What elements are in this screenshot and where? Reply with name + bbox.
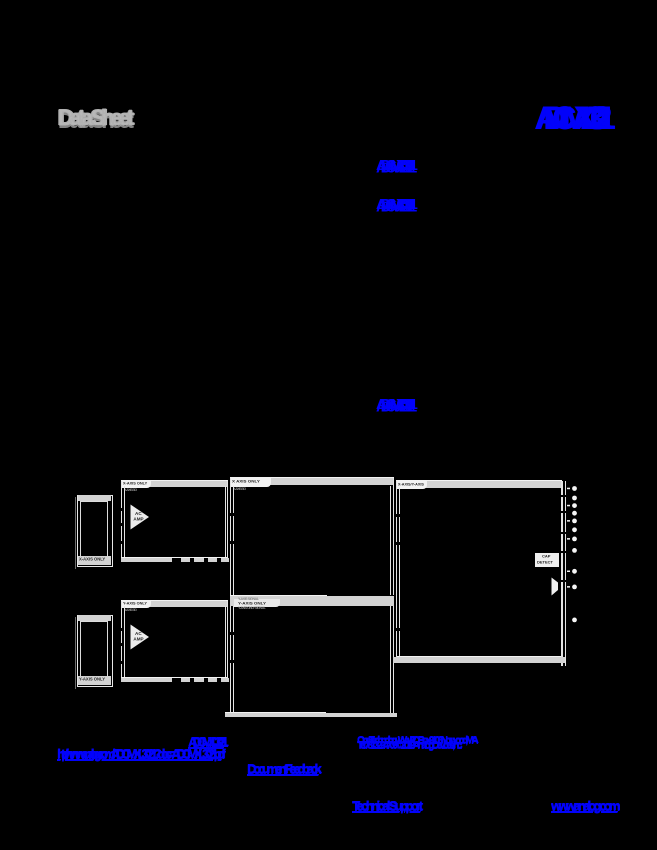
svg-text:AMP: AMP [133,517,143,522]
svg-text:AC: AC [135,511,142,516]
svg-text:AC: AC [135,631,142,636]
svg-text:AMP: AMP [133,637,143,642]
